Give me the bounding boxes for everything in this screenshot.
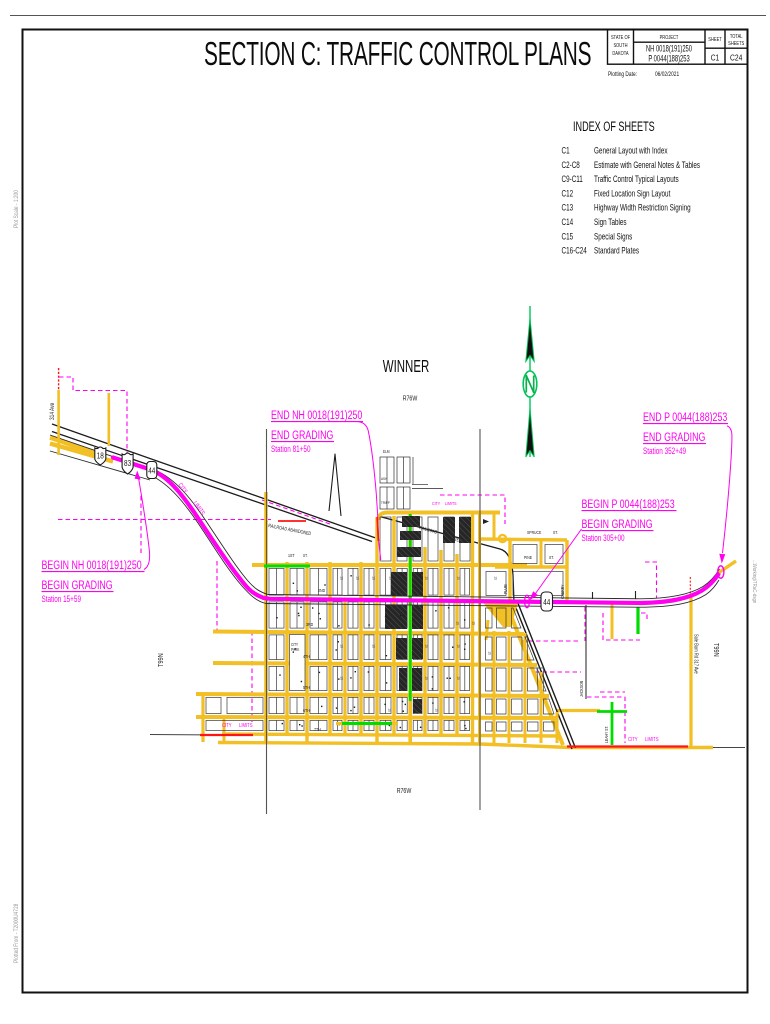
- svg-text:ST.: ST.: [356, 576, 361, 580]
- svg-text:ST.: ST.: [389, 576, 394, 580]
- svg-text:PLUM: PLUM: [502, 584, 508, 594]
- svg-text:T99N: T99N: [712, 643, 720, 657]
- svg-text:Station 305+00: Station 305+00: [582, 533, 625, 543]
- svg-text:R76W: R76W: [403, 395, 418, 403]
- svg-text:BEGIN GRADING: BEGIN GRADING: [42, 579, 113, 593]
- svg-text:ST.: ST.: [457, 644, 462, 648]
- svg-text:Sign Tables: Sign Tables: [594, 217, 627, 227]
- svg-text:Sale Barn Rd 317 Ave: Sale Barn Rd 317 Ave: [693, 634, 699, 674]
- svg-text:2ND: 2ND: [318, 587, 325, 593]
- svg-text:General Layout with Index: General Layout with Index: [594, 145, 668, 155]
- svg-text:CHERRY: CHERRY: [559, 584, 565, 599]
- svg-text:ST.: ST.: [340, 644, 345, 648]
- svg-text:ST.: ST.: [372, 644, 377, 648]
- svg-text:83: 83: [124, 458, 131, 468]
- svg-text:...Working\TRaC-dsgn: ...Working\TRaC-dsgn: [751, 560, 758, 604]
- svg-text:END NH 0018(191)250: END NH 0018(191)250: [271, 409, 362, 423]
- svg-text:C16-C24: C16-C24: [562, 246, 588, 256]
- svg-text:C24: C24: [730, 53, 743, 63]
- svg-text:Plot Scale - 1:200: Plot Scale - 1:200: [14, 190, 21, 228]
- svg-text:LEAHY ST.: LEAHY ST.: [603, 726, 609, 743]
- svg-text:4TH: 4TH: [303, 653, 310, 659]
- svg-text:06/02/2021: 06/02/2021: [655, 72, 679, 79]
- svg-text:ST.: ST.: [425, 576, 430, 580]
- svg-text:Special Signs: Special Signs: [594, 231, 632, 241]
- svg-text:1ST: 1ST: [288, 552, 295, 558]
- svg-text:PINE: PINE: [524, 554, 532, 560]
- svg-text:ST.: ST.: [372, 576, 377, 580]
- svg-text:CITY: CITY: [222, 723, 232, 730]
- svg-text:SOUTH: SOUTH: [613, 42, 627, 49]
- svg-text:BEGIN NH 0018(191)250: BEGIN NH 0018(191)250: [42, 559, 142, 573]
- svg-text:PARK: PARK: [291, 648, 300, 653]
- svg-text:C1: C1: [562, 145, 570, 155]
- svg-text:PROJECT: PROJECT: [660, 34, 679, 41]
- svg-text:DAKOTA: DAKOTA: [612, 50, 629, 57]
- svg-text:ST.: ST.: [553, 529, 558, 535]
- svg-text:ST.: ST.: [340, 576, 345, 580]
- svg-text:TOTAL: TOTAL: [730, 33, 743, 40]
- svg-text:7TH: 7TH: [314, 726, 321, 732]
- svg-text:314 Ave: 314 Ave: [50, 403, 57, 420]
- svg-text:Station 352+49: Station 352+49: [643, 446, 686, 456]
- svg-text:P 0044(188)253: P 0044(188)253: [648, 53, 689, 64]
- svg-text:Station 15+59: Station 15+59: [42, 594, 81, 604]
- svg-text:ST.: ST.: [488, 651, 493, 655]
- svg-text:SECTION C: TRAFFIC CONTROL PLA: SECTION C: TRAFFIC CONTROL PLANS: [204, 35, 591, 72]
- svg-text:ST.: ST.: [425, 644, 430, 648]
- svg-text:6TH: 6TH: [303, 707, 310, 713]
- svg-text:CITY: CITY: [432, 500, 440, 506]
- svg-text:ST.: ST.: [456, 621, 461, 625]
- svg-text:LIMITS: LIMITS: [645, 737, 659, 744]
- svg-text:WINNER: WINNER: [383, 358, 429, 377]
- svg-text:ELM: ELM: [383, 450, 389, 455]
- svg-text:C12: C12: [562, 188, 574, 198]
- svg-text:R76W: R76W: [397, 787, 412, 795]
- svg-text:CITY: CITY: [291, 643, 299, 648]
- svg-text:SHEETS: SHEETS: [728, 40, 745, 47]
- svg-text:44: 44: [543, 597, 550, 607]
- svg-text:5TH: 5TH: [303, 684, 310, 690]
- svg-text:ST.: ST.: [457, 576, 462, 580]
- svg-text:C1: C1: [711, 53, 720, 63]
- svg-text:44: 44: [148, 466, 155, 476]
- svg-text:C15: C15: [562, 231, 574, 241]
- svg-text:ASH: ASH: [381, 477, 388, 482]
- svg-text:Plotting Date:: Plotting Date:: [608, 72, 637, 79]
- svg-text:SHEET: SHEET: [708, 36, 721, 43]
- svg-text:Station 81+50: Station 81+50: [271, 444, 310, 454]
- svg-text:ST.: ST.: [303, 554, 308, 559]
- svg-text:C14: C14: [562, 217, 574, 227]
- svg-text:ST.: ST.: [494, 576, 499, 580]
- svg-text:C2-C8: C2-C8: [562, 160, 580, 170]
- svg-text:ST.: ST.: [457, 676, 462, 680]
- svg-text:INDEX OF SHEETS: INDEX OF SHEETS: [573, 118, 655, 135]
- svg-text:18: 18: [97, 451, 104, 461]
- svg-text:Plotted From - T2000U4728: Plotted From - T2000U4728: [14, 904, 21, 963]
- svg-text:SPRUCE: SPRUCE: [527, 529, 542, 535]
- svg-text:TRIPP: TRIPP: [381, 501, 390, 506]
- svg-text:Highway Width Restriction Sign: Highway Width Restriction Signing: [594, 203, 691, 213]
- svg-text:ST.: ST.: [340, 676, 345, 680]
- svg-text:BEGIN P 0044(188)253: BEGIN P 0044(188)253: [582, 498, 675, 512]
- svg-text:STATE OF: STATE OF: [611, 34, 630, 41]
- svg-text:LIMITS: LIMITS: [239, 723, 253, 730]
- svg-text:END P 0044(188)253: END P 0044(188)253: [643, 411, 727, 425]
- svg-text:JACKSON: JACKSON: [578, 681, 584, 697]
- svg-text:Traffic Control Typical Layout: Traffic Control Typical Layouts: [594, 174, 679, 184]
- svg-text:C9-C11: C9-C11: [562, 174, 583, 184]
- svg-text:ST.: ST.: [388, 708, 393, 712]
- svg-text:ST.: ST.: [472, 621, 477, 625]
- svg-text:END GRADING: END GRADING: [271, 429, 333, 443]
- svg-text:Estimate with General Notes &: Estimate with General Notes & Tables: [594, 160, 700, 170]
- svg-text:C13: C13: [562, 203, 574, 213]
- svg-text:Standard Plates: Standard Plates: [594, 246, 639, 256]
- svg-text:ST.: ST.: [435, 708, 440, 712]
- svg-text:ST.: ST.: [425, 676, 430, 680]
- svg-text:LIMITS: LIMITS: [445, 500, 457, 506]
- svg-text:BEGIN GRADING: BEGIN GRADING: [582, 518, 653, 532]
- svg-text:END GRADING: END GRADING: [643, 431, 705, 445]
- svg-text:CITY: CITY: [628, 737, 638, 744]
- svg-text:3RD: 3RD: [306, 621, 313, 627]
- svg-text:Fixed Location Sign Layout: Fixed Location Sign Layout: [594, 188, 671, 198]
- svg-text:T99N: T99N: [157, 653, 165, 667]
- svg-text:ST.: ST.: [549, 554, 554, 560]
